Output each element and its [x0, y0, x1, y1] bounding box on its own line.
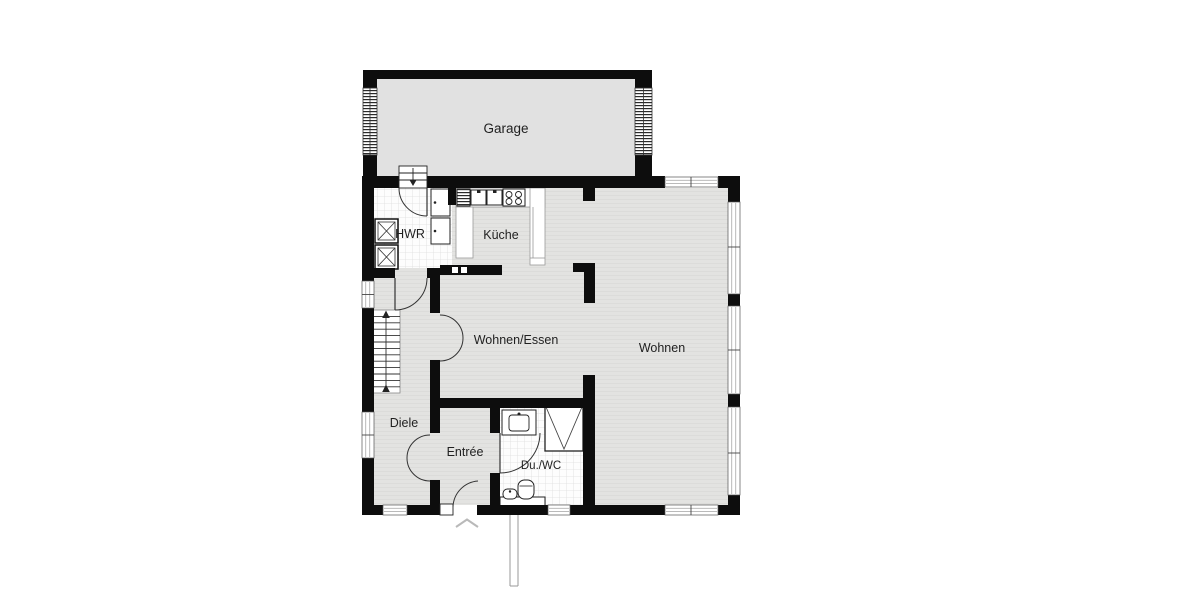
window-right-upper: [728, 202, 740, 294]
room-label-diele: Diele: [390, 416, 419, 430]
room-label-hwr: HWR: [395, 227, 425, 241]
garage-door-right: [635, 88, 652, 155]
double-sink-icon: [471, 190, 502, 206]
kitchen-counter-right: [530, 188, 545, 265]
window-right-middle: [728, 306, 740, 394]
storage-cabinet-icon: [431, 218, 450, 244]
window-right-lower: [728, 407, 740, 495]
room-label-entree: Entrée: [447, 445, 484, 459]
window-left-upper: [362, 281, 374, 308]
window-bottom-wohnen: [665, 505, 718, 515]
wall-stub-mid: [584, 263, 595, 303]
floor-plan: Garage HWR Küche Wohnen/Essen Wohnen Die…: [0, 0, 1200, 600]
window-bottom-diele: [383, 505, 407, 515]
washing-machine-icon: [375, 245, 398, 269]
room-label-wohnen: Wohnen: [639, 341, 685, 355]
wall-wc-right: [583, 375, 595, 505]
window-bottom-wc: [548, 505, 570, 515]
cooktop-icon: [503, 189, 525, 206]
room-label-du-wc: Du./WC: [521, 460, 561, 472]
window-top: [665, 177, 718, 187]
floor-plan-page: Garage HWR Küche Wohnen/Essen Wohnen Die…: [0, 0, 1200, 600]
wall-stub-top: [583, 188, 595, 201]
window-left-lower: [362, 412, 374, 458]
garage-door-left: [363, 88, 377, 155]
shower-icon: [545, 406, 583, 451]
hand-basin-icon: [503, 489, 517, 499]
wall-stub-mid-flag: [573, 263, 585, 272]
room-label-kueche: Küche: [483, 228, 518, 242]
staircase: [372, 310, 400, 393]
washbasin-icon: [502, 410, 536, 435]
storage-cabinet-icon: [431, 189, 450, 216]
room-label-wohnen-essen: Wohnen/Essen: [474, 333, 559, 347]
room-label-garage: Garage: [483, 121, 528, 136]
dishwasher-icon: [457, 189, 470, 206]
kitchen-counter-left: [456, 207, 473, 258]
garage-entry-steps: [399, 166, 427, 188]
toilet-icon: [518, 480, 534, 499]
